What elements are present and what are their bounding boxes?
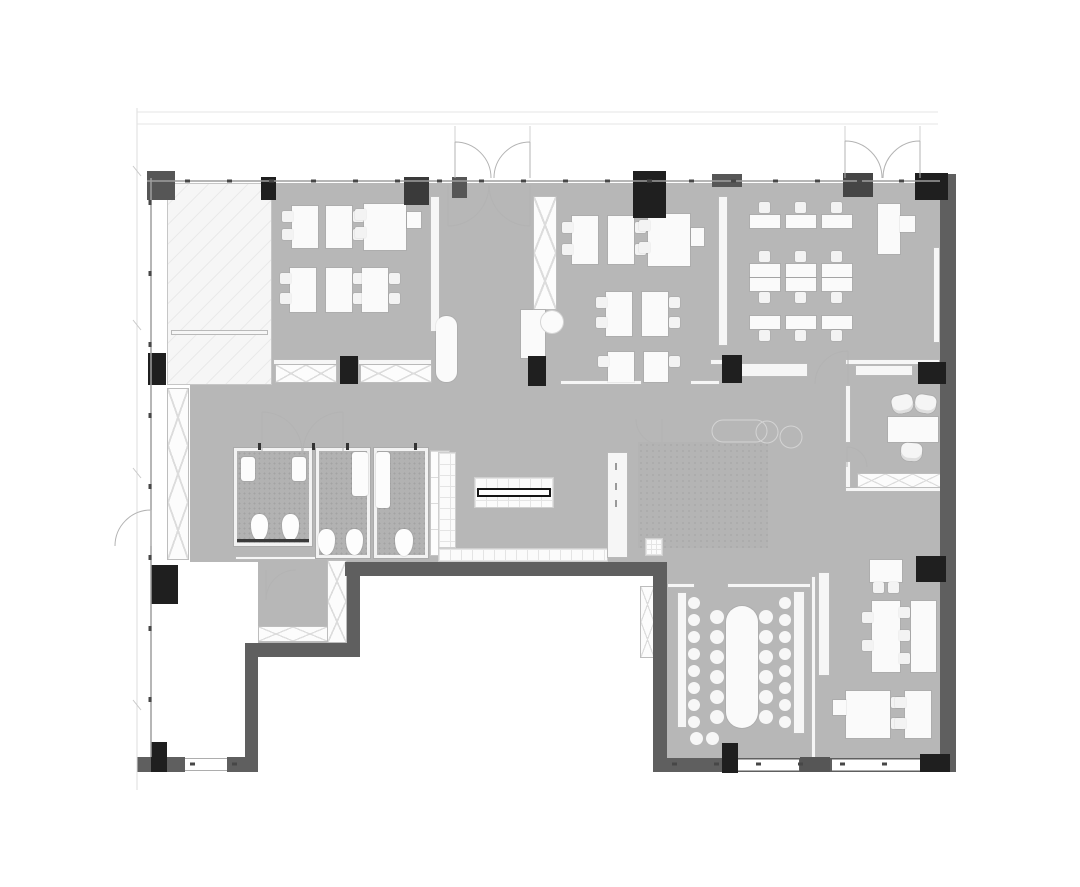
column (722, 355, 742, 383)
chair-icon (888, 582, 899, 593)
conference-chair-icon (759, 710, 773, 724)
whiteboard-training (933, 247, 940, 343)
side-table (407, 212, 421, 228)
conference-chair-icon (710, 610, 724, 624)
conference-chair-icon (710, 630, 724, 644)
desk-pair (606, 292, 632, 336)
duct-shaft-left (167, 388, 189, 560)
chair-icon (639, 220, 650, 231)
conference-chair-icon (759, 670, 773, 684)
door-stop-tick (312, 443, 315, 450)
conference-chair-icon (759, 630, 773, 644)
stool-icon (779, 648, 791, 660)
cabinet-office-a-1 (275, 364, 337, 383)
appliance-label-mark (615, 483, 617, 490)
door-stop-tick (414, 443, 417, 450)
bench-east (793, 591, 805, 734)
credenza (818, 572, 830, 676)
cabinet-private-office (857, 473, 941, 488)
break-mark (133, 166, 141, 710)
chair-icon (562, 244, 573, 255)
stool-icon (779, 597, 791, 609)
wall-office-b-east (718, 196, 728, 346)
column (633, 171, 666, 218)
column (918, 362, 946, 384)
chair-icon (795, 202, 806, 213)
bench-west (677, 592, 687, 728)
training-desk (786, 278, 816, 291)
door-stop-tick (258, 443, 261, 450)
vanity-wc-b (352, 452, 368, 496)
wall-conference-north-1 (667, 583, 695, 588)
door-swing-arc (494, 142, 530, 178)
chair-icon (831, 330, 842, 341)
desk-pair (870, 560, 902, 582)
training-desk (750, 316, 780, 329)
chair-icon (280, 293, 291, 304)
training-desk (750, 215, 780, 228)
column (148, 353, 166, 385)
desk-pair (642, 292, 668, 336)
cabinet-vestibule (258, 626, 328, 642)
column (404, 177, 429, 205)
door-swing-arc (455, 142, 491, 178)
wall-step-vertical-1 (347, 576, 360, 646)
chair-icon (389, 273, 400, 284)
chair-icon (596, 297, 607, 308)
desk-row (911, 601, 936, 672)
desk-pair (608, 352, 634, 382)
desk-pair (608, 216, 634, 264)
column (915, 173, 948, 200)
training-desk (786, 264, 816, 277)
chair-icon (895, 697, 906, 708)
conference-chair-icon (759, 610, 773, 624)
column (722, 743, 738, 773)
column (920, 754, 950, 772)
desk-pair (326, 206, 352, 248)
column (151, 742, 167, 772)
wall-south-west-2 (227, 757, 258, 772)
chair-icon (873, 582, 884, 593)
conference-chair-icon (710, 710, 724, 724)
floor-plan-canvas: Office floor plan (0, 0, 1080, 887)
conference-chair-icon (759, 650, 773, 664)
stool-icon (779, 699, 791, 711)
wall-south-center (345, 562, 667, 576)
chair-icon (759, 251, 770, 262)
chair-icon (831, 202, 842, 213)
door-swing-arc (115, 510, 151, 546)
desk-cluster (846, 691, 890, 738)
training-desk (786, 316, 816, 329)
desk-cluster (648, 214, 690, 266)
stool-icon (688, 665, 700, 677)
column (528, 356, 546, 386)
side-table (833, 700, 846, 715)
lectern (878, 204, 900, 254)
column (340, 356, 358, 384)
vanity-counter-line (237, 539, 309, 542)
chair-icon (795, 292, 806, 303)
chair-icon (669, 317, 680, 328)
chair-icon (282, 229, 293, 240)
wall-conference-west (653, 576, 667, 772)
training-desk (822, 278, 852, 291)
desk-pair (572, 216, 598, 264)
column (147, 171, 175, 200)
cabinet-office-a-2 (360, 364, 432, 383)
wall-office-a-south-1 (273, 359, 337, 365)
conference-chair-icon (710, 650, 724, 664)
wall-step-horizontal (245, 643, 360, 657)
core-room (167, 183, 272, 385)
desk-pair (290, 268, 316, 312)
chair-icon (282, 211, 293, 222)
wall-office-a-south-2 (358, 359, 432, 365)
column (916, 556, 946, 582)
training-desk (822, 215, 852, 228)
stool-icon (688, 648, 700, 660)
chair-icon (831, 292, 842, 303)
wall-private-office-west-2 (845, 461, 851, 490)
stool-icon (688, 614, 700, 626)
chair-icon (355, 227, 366, 238)
chair-icon (899, 653, 910, 664)
stool-icon (706, 732, 719, 745)
stool-icon (779, 631, 791, 643)
bench-training-2 (855, 365, 913, 376)
pantry-appliance (645, 538, 663, 556)
entrance-basin (541, 311, 563, 333)
training-desk (786, 215, 816, 228)
lounge-rug (638, 442, 768, 548)
door-stop-tick (346, 443, 349, 450)
chair-icon (598, 356, 609, 367)
wall-office-b-south-2 (690, 380, 720, 385)
column (712, 174, 742, 187)
training-desk (750, 264, 780, 277)
column (151, 565, 178, 604)
chair-icon (280, 273, 291, 284)
chair-icon (355, 209, 366, 220)
stool-icon (779, 665, 791, 677)
private-office-desk (888, 417, 938, 442)
basin-wc-a-1 (241, 457, 255, 481)
appliance-label-mark (615, 463, 617, 470)
duct-shaft-vestibule (327, 560, 347, 643)
stool-icon (688, 631, 700, 643)
conference-chair-icon (710, 690, 724, 704)
conference-chair-icon (759, 690, 773, 704)
door-south-west (185, 758, 227, 771)
wall-private-office-west-1 (845, 385, 851, 443)
training-desk (822, 316, 852, 329)
wall-conference-north-2 (727, 583, 811, 588)
pantry-tile-south (438, 548, 608, 562)
column (800, 757, 830, 772)
chair-icon (759, 330, 770, 341)
chair-icon (831, 251, 842, 262)
chair-icon (795, 251, 806, 262)
pantry-tile-west (438, 452, 456, 548)
desk-pair (644, 352, 668, 382)
entrance-bench (436, 316, 457, 382)
stool-icon (688, 597, 700, 609)
chair-icon (669, 356, 680, 367)
stool-icon (688, 716, 700, 728)
side-table (691, 228, 704, 246)
wall-conference-east (811, 576, 816, 772)
conference-chair-icon (710, 670, 724, 684)
chair-icon (639, 242, 650, 253)
conference-table (726, 606, 758, 728)
chair-icon (389, 293, 400, 304)
desk-row (905, 691, 931, 738)
lectern-side-table (900, 216, 915, 232)
desk-row (872, 601, 900, 672)
pantry-counter-east (607, 452, 628, 558)
chair-icon (759, 292, 770, 303)
office-chair-icon (900, 442, 922, 461)
training-desk (750, 278, 780, 291)
stool-icon (779, 614, 791, 626)
chair-icon (795, 330, 806, 341)
wall-step-vertical-2 (245, 643, 258, 772)
desk-cluster (364, 204, 406, 250)
window-south-east-1 (737, 759, 799, 771)
chair-icon (895, 718, 906, 729)
appliance-label-mark (615, 500, 617, 507)
column (843, 173, 873, 197)
desk-pair (292, 206, 318, 248)
chair-icon (562, 222, 573, 233)
stool-icon (688, 699, 700, 711)
desk-pair (326, 268, 352, 312)
pantry-bar-counter (477, 488, 551, 497)
vanity-wc-c (376, 452, 390, 508)
training-desk (822, 264, 852, 277)
chair-icon (669, 297, 680, 308)
chair-icon (899, 607, 910, 618)
chair-icon (862, 640, 873, 651)
column (452, 177, 467, 198)
wall-east (940, 174, 956, 772)
window-south-east-2 (832, 759, 920, 771)
basin-wc-a-2 (292, 457, 306, 481)
chair-icon (862, 612, 873, 623)
column (261, 177, 276, 200)
duct-shaft-entrance (533, 196, 557, 310)
stool-icon (688, 682, 700, 694)
wall-office-a-east (430, 196, 440, 332)
bench-training-1 (740, 363, 808, 377)
stool-icon (779, 716, 791, 728)
chair-icon (759, 202, 770, 213)
stool-icon (690, 732, 703, 745)
stool-icon (779, 682, 791, 694)
desk-pair (362, 268, 388, 312)
core-divider (171, 330, 268, 335)
facade-mullions (455, 126, 920, 176)
chair-icon (899, 630, 910, 641)
chair-icon (596, 317, 607, 328)
